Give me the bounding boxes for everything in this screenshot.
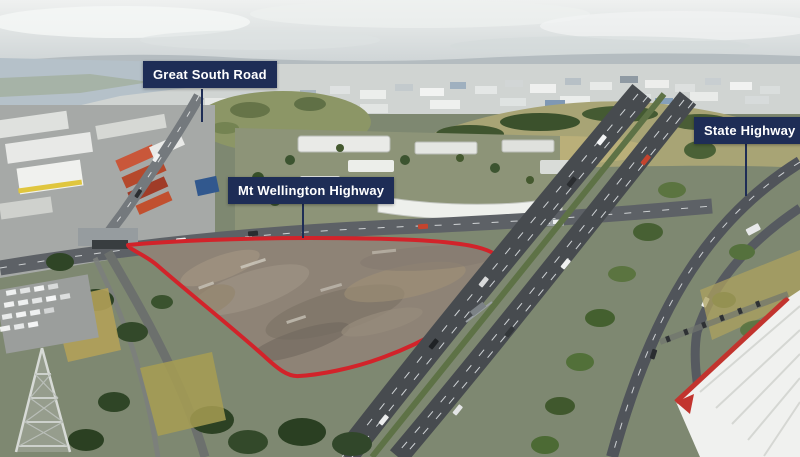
pointer-great-south-road	[201, 89, 203, 122]
aerial-scene	[0, 0, 800, 457]
label-great-south-road: Great South Road	[143, 61, 277, 88]
label-mt-wellington-highway: Mt Wellington Highway	[228, 177, 394, 204]
aerial-site-photo: Great South Road Mt Wellington Highway S…	[0, 0, 800, 457]
pointer-mt-wellington-highway	[302, 203, 304, 238]
label-state-highway-1: State Highway 1	[694, 117, 800, 144]
pointer-state-highway-1	[745, 143, 747, 196]
